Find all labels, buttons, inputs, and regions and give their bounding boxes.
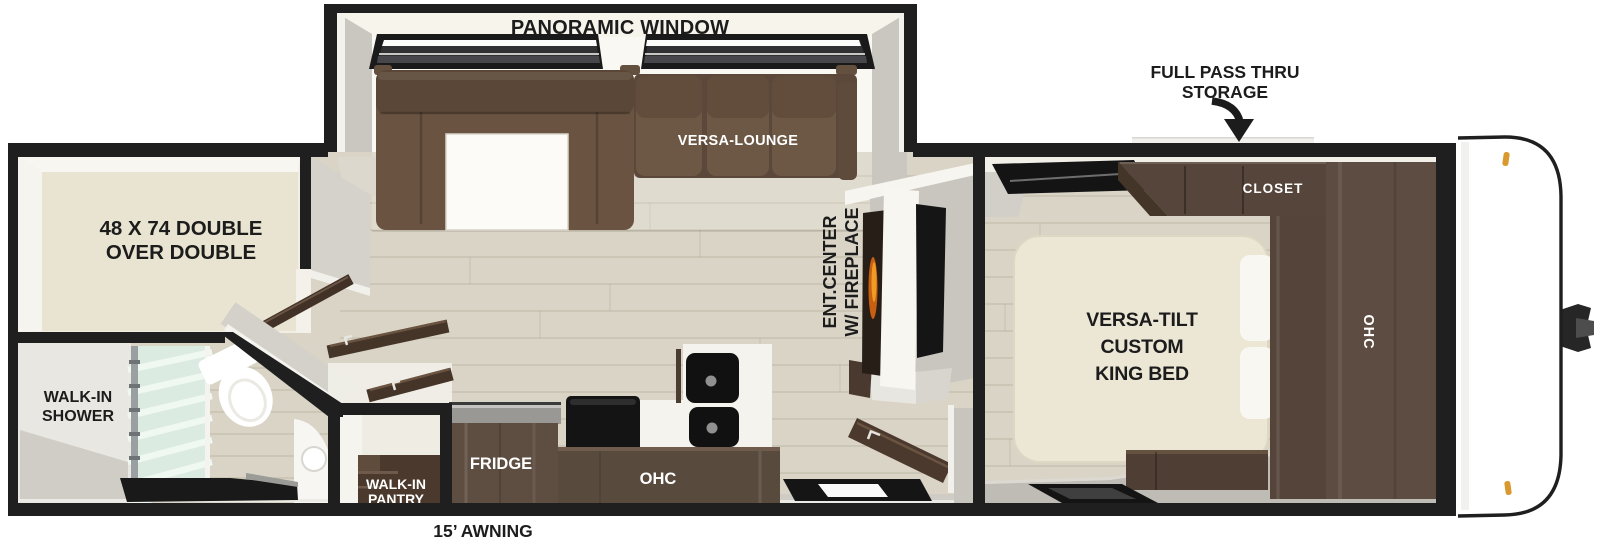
svg-text:48 X 74 DOUBLE: 48 X 74 DOUBLE	[100, 217, 263, 240]
svg-text:OHC: OHC	[640, 470, 677, 488]
svg-text:STORAGE: STORAGE	[1182, 82, 1268, 102]
svg-text:FRIDGE: FRIDGE	[470, 455, 532, 473]
svg-text:W/ FIREPLACE: W/ FIREPLACE	[842, 208, 862, 337]
svg-text:CUSTOM: CUSTOM	[1101, 336, 1184, 358]
svg-text:FULL PASS THRU: FULL PASS THRU	[1150, 62, 1299, 82]
svg-text:WALK-IN: WALK-IN	[44, 389, 112, 406]
svg-text:CLOSET: CLOSET	[1243, 181, 1304, 196]
svg-text:15’ AWNING: 15’ AWNING	[433, 521, 533, 540]
svg-text:KING BED: KING BED	[1095, 363, 1189, 385]
svg-text:ENT.CENTER: ENT.CENTER	[820, 215, 840, 328]
svg-text:SHOWER: SHOWER	[42, 408, 114, 425]
svg-text:VERSA-TILT: VERSA-TILT	[1086, 309, 1198, 331]
svg-text:OHC: OHC	[1360, 314, 1376, 349]
svg-text:WALK-IN: WALK-IN	[366, 476, 426, 492]
svg-text:OVER DOUBLE: OVER DOUBLE	[106, 241, 256, 264]
svg-text:VERSA-LOUNGE: VERSA-LOUNGE	[678, 133, 798, 149]
